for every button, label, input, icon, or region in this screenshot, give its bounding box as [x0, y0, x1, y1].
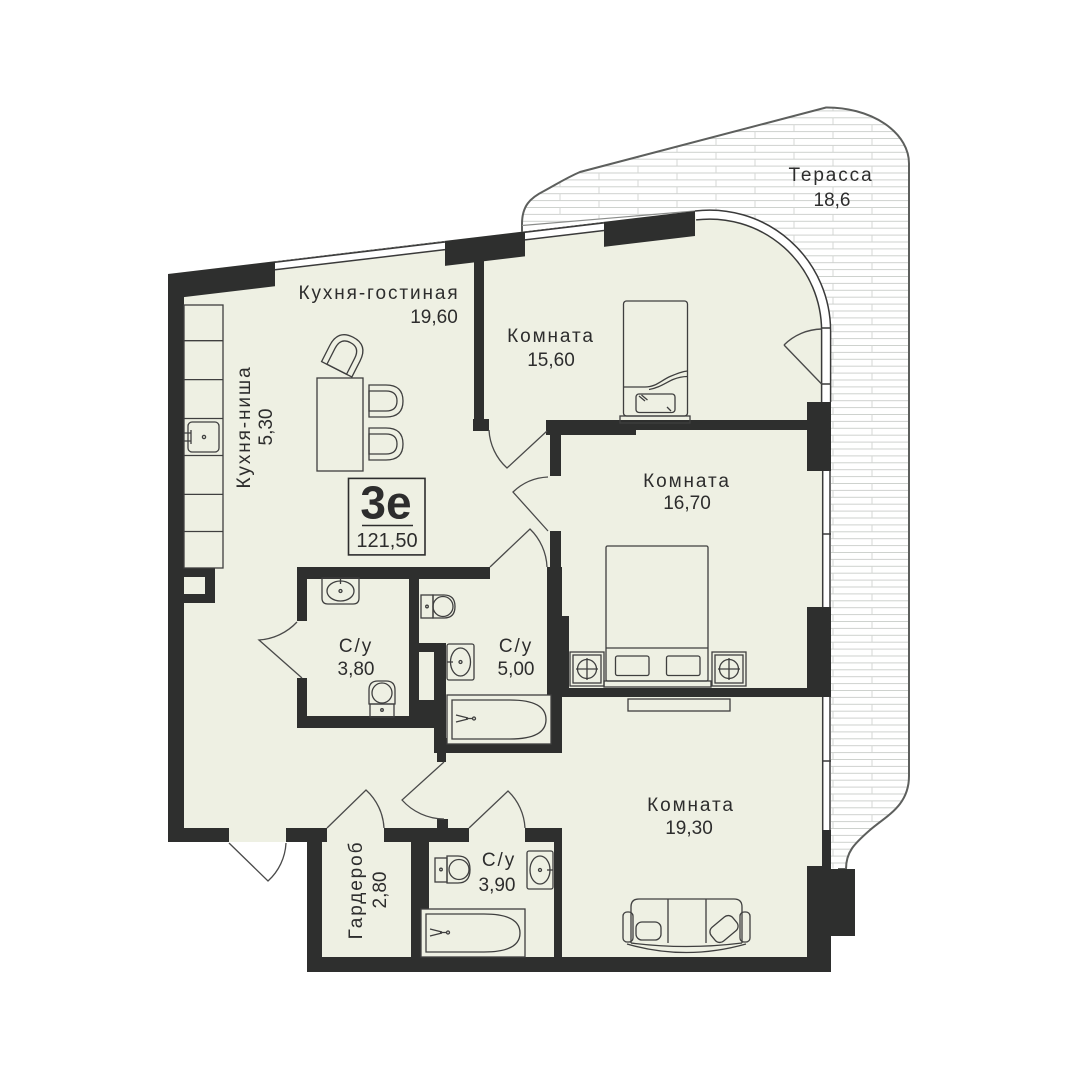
svg-text:15,60: 15,60: [527, 350, 575, 371]
svg-text:Комната: Комната: [647, 795, 735, 816]
svg-text:Кухня-ниша: Кухня-ниша: [234, 365, 255, 488]
svg-text:3,80: 3,80: [338, 659, 375, 680]
svg-text:3,90: 3,90: [479, 875, 516, 896]
svg-text:3е: 3е: [360, 477, 411, 529]
svg-text:С/у: С/у: [339, 636, 373, 657]
svg-text:Гардероб: Гардероб: [346, 841, 367, 940]
svg-text:19,30: 19,30: [665, 818, 713, 839]
svg-text:С/у: С/у: [499, 636, 533, 657]
svg-text:С/у: С/у: [482, 850, 516, 871]
svg-text:18,6: 18,6: [814, 190, 851, 211]
svg-text:19,60: 19,60: [410, 307, 458, 328]
svg-text:Кухня-гостиная: Кухня-гостиная: [298, 283, 459, 304]
svg-text:Терасса: Терасса: [788, 165, 873, 186]
svg-text:5,00: 5,00: [498, 659, 535, 680]
svg-text:2,80: 2,80: [370, 872, 391, 909]
svg-text:5,30: 5,30: [256, 409, 277, 446]
svg-text:121,50: 121,50: [356, 530, 417, 552]
svg-text:16,70: 16,70: [663, 493, 711, 514]
svg-text:Комната: Комната: [507, 326, 595, 347]
svg-text:Комната: Комната: [643, 471, 731, 492]
